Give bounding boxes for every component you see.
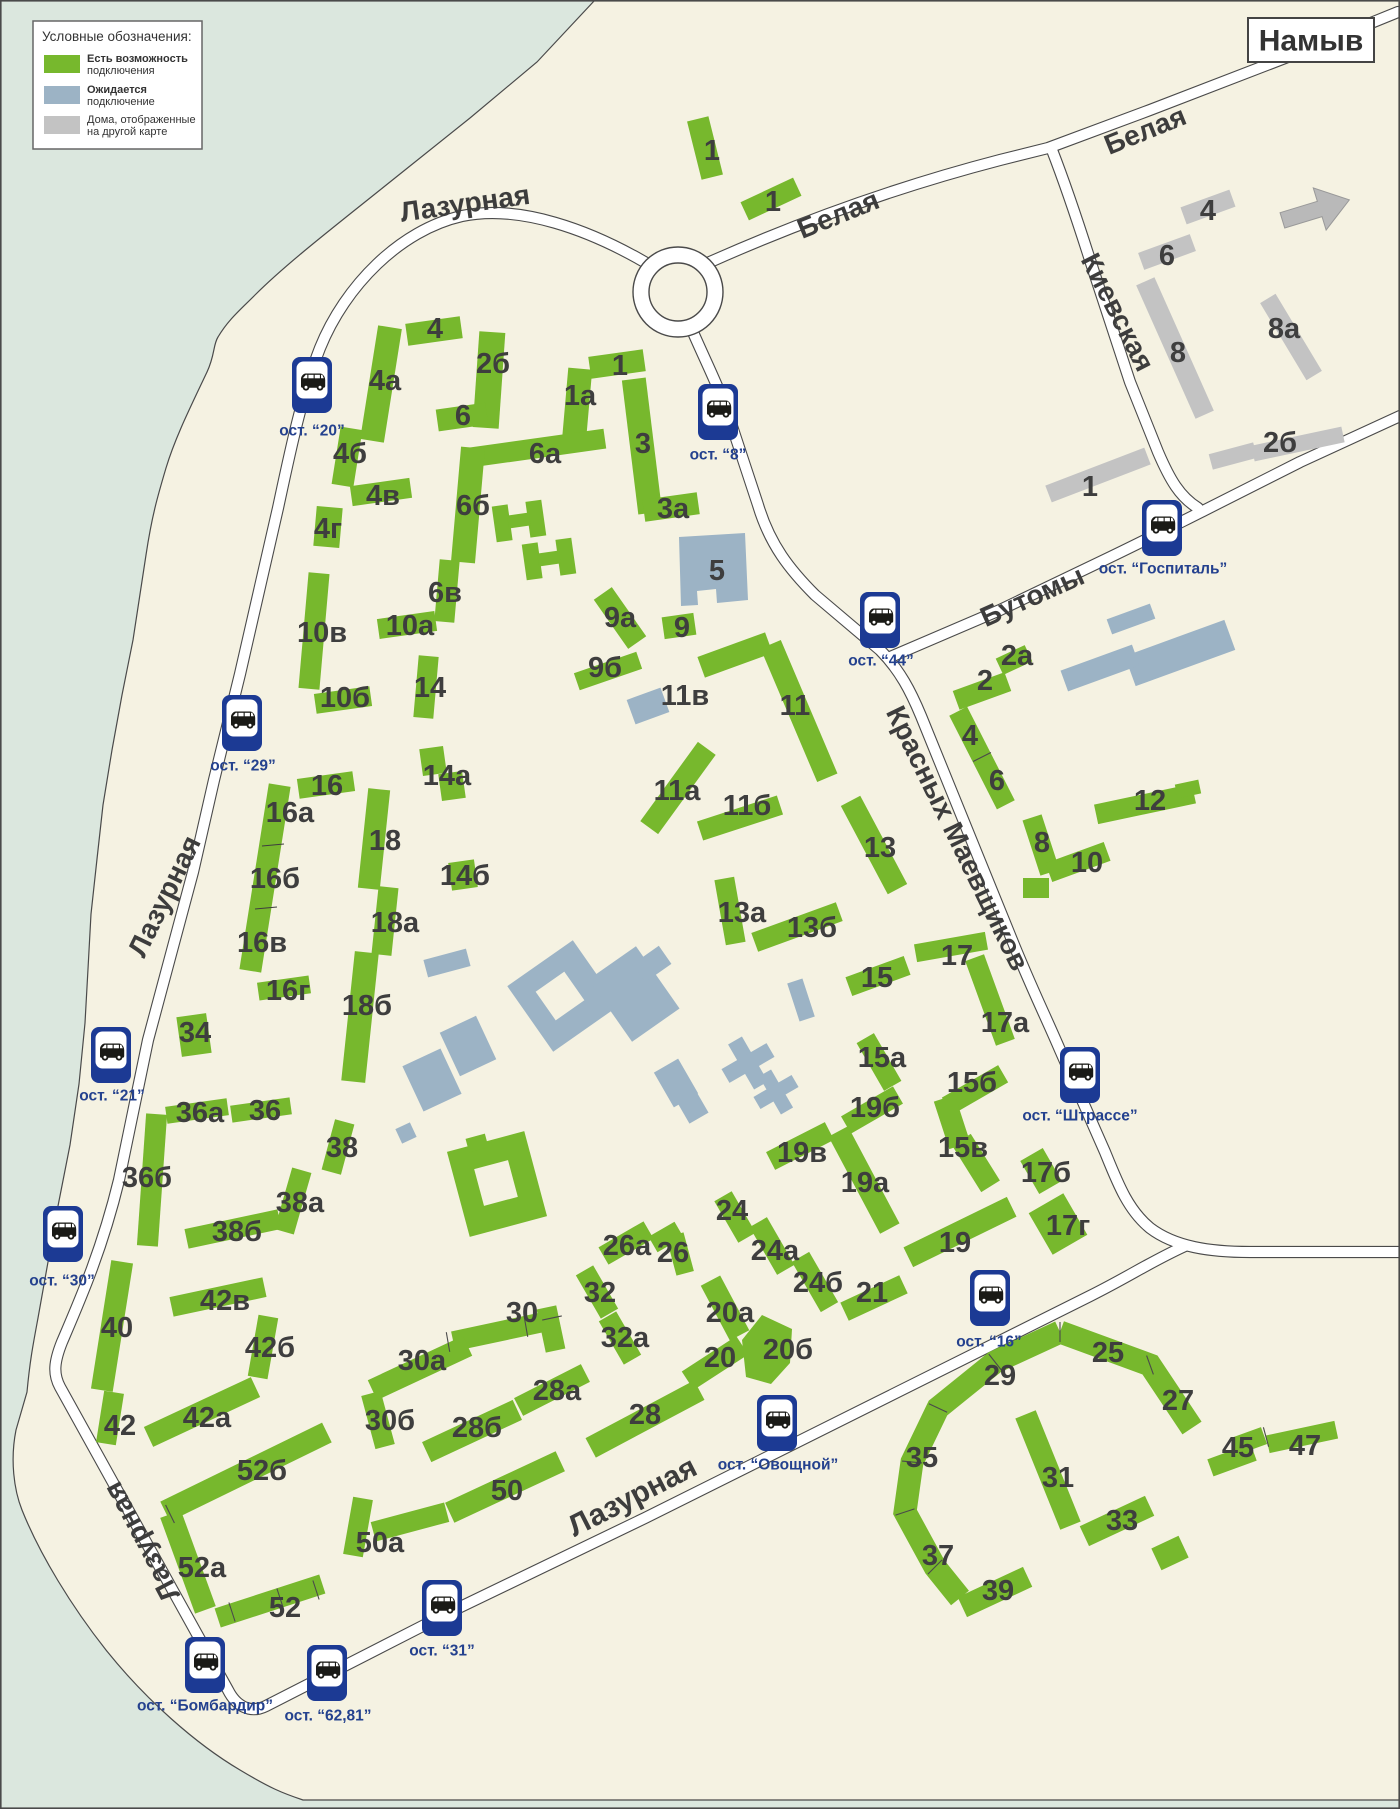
svg-text:15: 15 bbox=[861, 962, 893, 994]
svg-text:42в: 42в bbox=[200, 1285, 250, 1317]
svg-text:ост. “Штрассе”: ост. “Штрассе” bbox=[1022, 1107, 1137, 1124]
svg-text:28: 28 bbox=[629, 1399, 661, 1431]
svg-text:19: 19 bbox=[939, 1227, 971, 1259]
svg-text:14: 14 bbox=[414, 672, 446, 704]
svg-text:17а: 17а bbox=[981, 1007, 1030, 1039]
svg-text:25: 25 bbox=[1092, 1337, 1124, 1369]
svg-text:9а: 9а bbox=[604, 602, 637, 634]
svg-text:17б: 17б bbox=[1021, 1157, 1071, 1189]
svg-text:13: 13 bbox=[864, 832, 896, 864]
svg-text:4: 4 bbox=[427, 313, 443, 345]
svg-text:50: 50 bbox=[491, 1475, 523, 1507]
svg-text:4б: 4б bbox=[333, 438, 367, 470]
svg-text:2б: 2б bbox=[1263, 427, 1297, 459]
svg-text:40: 40 bbox=[101, 1312, 133, 1344]
svg-text:16б: 16б bbox=[250, 863, 300, 895]
svg-text:1: 1 bbox=[1082, 471, 1098, 503]
svg-text:19б: 19б bbox=[850, 1092, 900, 1124]
svg-text:52б: 52б bbox=[237, 1455, 287, 1487]
svg-text:33: 33 bbox=[1106, 1505, 1138, 1537]
svg-text:34: 34 bbox=[179, 1017, 211, 1049]
svg-text:6: 6 bbox=[1159, 240, 1175, 272]
svg-text:11: 11 bbox=[780, 690, 811, 722]
svg-text:16: 16 bbox=[311, 770, 343, 802]
svg-text:30б: 30б bbox=[365, 1405, 415, 1437]
svg-text:2б: 2б bbox=[476, 348, 510, 380]
svg-text:10а: 10а bbox=[386, 610, 435, 642]
svg-text:26а: 26а bbox=[603, 1230, 652, 1262]
svg-text:17: 17 bbox=[941, 940, 973, 972]
svg-text:24б: 24б bbox=[793, 1267, 843, 1299]
svg-text:ост. “31”: ост. “31” bbox=[409, 1642, 474, 1659]
svg-text:28а: 28а bbox=[533, 1375, 582, 1407]
svg-text:16в: 16в bbox=[237, 927, 287, 959]
svg-text:подключения: подключения bbox=[87, 65, 155, 77]
svg-text:31: 31 bbox=[1042, 1462, 1074, 1494]
svg-text:10б: 10б bbox=[320, 682, 370, 714]
svg-text:2: 2 bbox=[977, 665, 993, 697]
svg-text:39: 39 bbox=[982, 1575, 1014, 1607]
svg-text:ост. “21”: ост. “21” bbox=[79, 1087, 144, 1104]
svg-text:27: 27 bbox=[1162, 1385, 1194, 1417]
svg-text:Дома, отображенные: Дома, отображенные bbox=[87, 114, 196, 126]
svg-text:4г: 4г bbox=[314, 513, 342, 545]
svg-text:ост. “62,81”: ост. “62,81” bbox=[284, 1707, 371, 1724]
svg-text:42б: 42б bbox=[245, 1332, 295, 1364]
svg-text:28б: 28б bbox=[452, 1412, 502, 1444]
svg-text:11а: 11а bbox=[654, 775, 702, 807]
svg-text:18б: 18б bbox=[342, 990, 392, 1022]
svg-text:на другой карте: на другой карте bbox=[87, 126, 167, 138]
svg-text:32а: 32а bbox=[601, 1322, 650, 1354]
svg-text:26: 26 bbox=[657, 1237, 689, 1269]
svg-text:45: 45 bbox=[1222, 1432, 1254, 1464]
svg-text:14а: 14а bbox=[423, 760, 472, 792]
svg-text:ост. “16”: ост. “16” bbox=[956, 1333, 1021, 1350]
svg-text:21: 21 bbox=[856, 1277, 888, 1309]
svg-text:ост. “20”: ост. “20” bbox=[279, 422, 344, 439]
svg-text:1: 1 bbox=[765, 186, 781, 218]
svg-text:52а: 52а bbox=[178, 1552, 227, 1584]
svg-text:13а: 13а bbox=[718, 897, 767, 929]
svg-text:Есть возможность: Есть возможность bbox=[87, 53, 188, 65]
svg-text:6в: 6в bbox=[428, 577, 462, 609]
svg-text:35: 35 bbox=[906, 1442, 938, 1474]
svg-text:ост. “29”: ост. “29” bbox=[210, 757, 275, 774]
svg-text:Намыв: Намыв bbox=[1259, 25, 1364, 58]
svg-text:30: 30 bbox=[506, 1297, 538, 1329]
svg-text:52: 52 bbox=[269, 1592, 301, 1624]
svg-text:38а: 38а bbox=[276, 1187, 325, 1219]
svg-text:30а: 30а bbox=[398, 1345, 447, 1377]
svg-text:24: 24 bbox=[716, 1195, 748, 1227]
svg-text:1: 1 bbox=[612, 350, 628, 382]
svg-text:Условные обозначения:: Условные обозначения: bbox=[42, 29, 192, 44]
svg-text:29: 29 bbox=[984, 1360, 1016, 1392]
svg-text:8а: 8а bbox=[1268, 313, 1301, 345]
svg-text:9: 9 bbox=[674, 612, 690, 644]
svg-text:4: 4 bbox=[1200, 195, 1216, 227]
svg-text:ост. “Бомбардир”: ост. “Бомбардир” bbox=[137, 1697, 273, 1714]
svg-text:подключение: подключение bbox=[87, 96, 155, 108]
svg-text:18а: 18а bbox=[371, 907, 420, 939]
svg-text:32: 32 bbox=[584, 1277, 616, 1309]
svg-text:8: 8 bbox=[1034, 827, 1050, 859]
svg-text:6б: 6б bbox=[456, 490, 490, 522]
svg-text:19в: 19в bbox=[777, 1137, 827, 1169]
svg-text:36б: 36б bbox=[122, 1162, 172, 1194]
svg-text:11в: 11в bbox=[661, 680, 709, 712]
svg-text:6: 6 bbox=[989, 765, 1005, 797]
svg-text:4в: 4в bbox=[366, 480, 400, 512]
svg-text:17г: 17г bbox=[1046, 1210, 1090, 1242]
svg-text:18: 18 bbox=[369, 825, 401, 857]
svg-text:38: 38 bbox=[326, 1132, 358, 1164]
svg-text:5: 5 bbox=[709, 555, 725, 587]
svg-text:ост. “Овощной”: ост. “Овощной” bbox=[718, 1456, 839, 1473]
svg-text:3а: 3а bbox=[657, 493, 690, 525]
svg-text:36: 36 bbox=[249, 1095, 281, 1127]
svg-text:4а: 4а bbox=[369, 365, 402, 397]
svg-text:10в: 10в bbox=[297, 617, 347, 649]
svg-text:8: 8 bbox=[1170, 337, 1186, 369]
svg-text:16г: 16г bbox=[266, 975, 310, 1007]
svg-text:14б: 14б bbox=[440, 860, 490, 892]
svg-text:47: 47 bbox=[1289, 1430, 1321, 1462]
svg-text:ост. “44”: ост. “44” bbox=[848, 652, 913, 669]
svg-text:38б: 38б bbox=[212, 1216, 262, 1248]
svg-text:ост. “Госпиталь”: ост. “Госпиталь” bbox=[1099, 560, 1228, 577]
svg-text:20б: 20б bbox=[763, 1334, 813, 1366]
svg-text:16а: 16а bbox=[266, 797, 315, 829]
svg-text:20: 20 bbox=[704, 1342, 736, 1374]
svg-text:6: 6 bbox=[455, 400, 471, 432]
svg-text:10: 10 bbox=[1071, 847, 1103, 879]
svg-text:20а: 20а bbox=[706, 1297, 755, 1329]
svg-text:11б: 11б bbox=[723, 790, 772, 822]
svg-text:4: 4 bbox=[962, 720, 978, 752]
svg-text:9б: 9б bbox=[588, 652, 622, 684]
svg-text:19а: 19а bbox=[841, 1167, 890, 1199]
svg-text:42а: 42а bbox=[183, 1402, 232, 1434]
svg-text:15б: 15б bbox=[947, 1067, 997, 1099]
svg-text:ост. “8”: ост. “8” bbox=[690, 446, 747, 463]
svg-text:42: 42 bbox=[104, 1410, 136, 1442]
svg-text:36а: 36а bbox=[176, 1097, 225, 1129]
svg-text:24а: 24а bbox=[751, 1235, 800, 1267]
svg-text:2а: 2а bbox=[1001, 640, 1034, 672]
svg-text:12: 12 bbox=[1134, 785, 1166, 817]
svg-text:50а: 50а bbox=[356, 1527, 405, 1559]
svg-text:13б: 13б bbox=[787, 912, 837, 944]
svg-text:3: 3 bbox=[635, 428, 651, 460]
svg-text:15а: 15а bbox=[858, 1042, 907, 1074]
svg-text:ост. “30”: ост. “30” bbox=[29, 1272, 94, 1289]
svg-text:37: 37 bbox=[922, 1540, 954, 1572]
svg-text:1: 1 bbox=[704, 135, 720, 167]
svg-text:6а: 6а bbox=[529, 438, 562, 470]
svg-text:15в: 15в bbox=[938, 1132, 988, 1164]
svg-text:1а: 1а bbox=[564, 380, 597, 412]
svg-text:Ожидается: Ожидается bbox=[87, 84, 147, 96]
